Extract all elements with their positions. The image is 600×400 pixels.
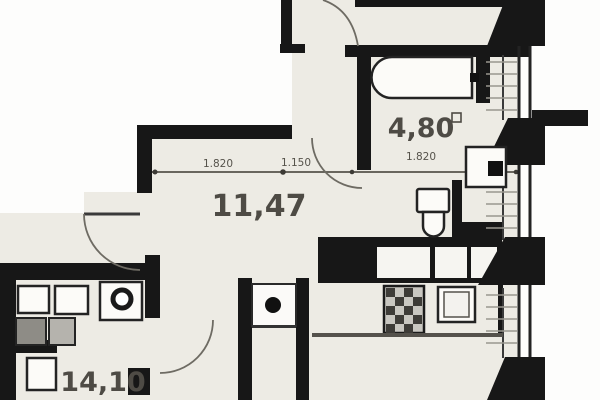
column-base-line bbox=[252, 325, 296, 328]
bathroom-left-wall bbox=[357, 45, 371, 170]
cabinet-icon bbox=[18, 286, 49, 313]
dimension-label-right: 1.820 bbox=[406, 151, 436, 163]
hallway-area-label: 11,47 bbox=[212, 189, 307, 224]
toilet-bowl bbox=[423, 212, 444, 237]
vent-shaft-icon bbox=[384, 286, 424, 333]
wall-opening bbox=[435, 247, 467, 278]
wall-opening bbox=[377, 247, 430, 278]
corridor-wall-stub bbox=[280, 44, 305, 53]
floor-plan-canvas: 4,80 11,47 14,10 1.820 1.150 1.820 bbox=[0, 0, 600, 400]
bathtub-icon bbox=[372, 57, 472, 98]
left-exterior-wall bbox=[0, 276, 16, 400]
dimension-label-left: 1.820 bbox=[203, 158, 233, 170]
structural-column bbox=[252, 284, 296, 328]
dimension-tick bbox=[153, 170, 158, 175]
sink-basin bbox=[113, 290, 131, 308]
cabinet-icon bbox=[27, 358, 56, 390]
cabinet-icon bbox=[55, 286, 88, 314]
center-column-left-wall bbox=[238, 278, 252, 400]
stove-icon bbox=[16, 318, 46, 345]
entry-floor bbox=[84, 192, 152, 272]
bathtub-tap bbox=[470, 73, 479, 82]
dimension-tick bbox=[280, 169, 286, 175]
utility-sink-basin bbox=[444, 292, 469, 317]
counter-edge bbox=[312, 333, 503, 337]
column-dot bbox=[265, 297, 281, 313]
kitchen-top-wall bbox=[0, 263, 160, 280]
corridor-left-wall bbox=[281, 0, 292, 48]
dimension-label-middle: 1.150 bbox=[281, 157, 311, 169]
kitchen-area-label: 14,10 bbox=[60, 367, 145, 398]
nook-bottom-wall bbox=[452, 222, 502, 237]
hall-top-wall bbox=[137, 125, 292, 139]
toilet-icon bbox=[417, 189, 449, 212]
center-column-right-wall bbox=[296, 278, 309, 400]
dimension-tick bbox=[350, 170, 355, 175]
bathroom-area-label: 4,80 bbox=[388, 113, 455, 144]
hall-left-wall bbox=[137, 125, 152, 193]
floor-plan: 4,80 11,47 14,10 1.820 1.150 1.820 bbox=[0, 0, 600, 400]
stove-icon bbox=[49, 318, 75, 345]
washing-machine-door bbox=[488, 161, 503, 176]
